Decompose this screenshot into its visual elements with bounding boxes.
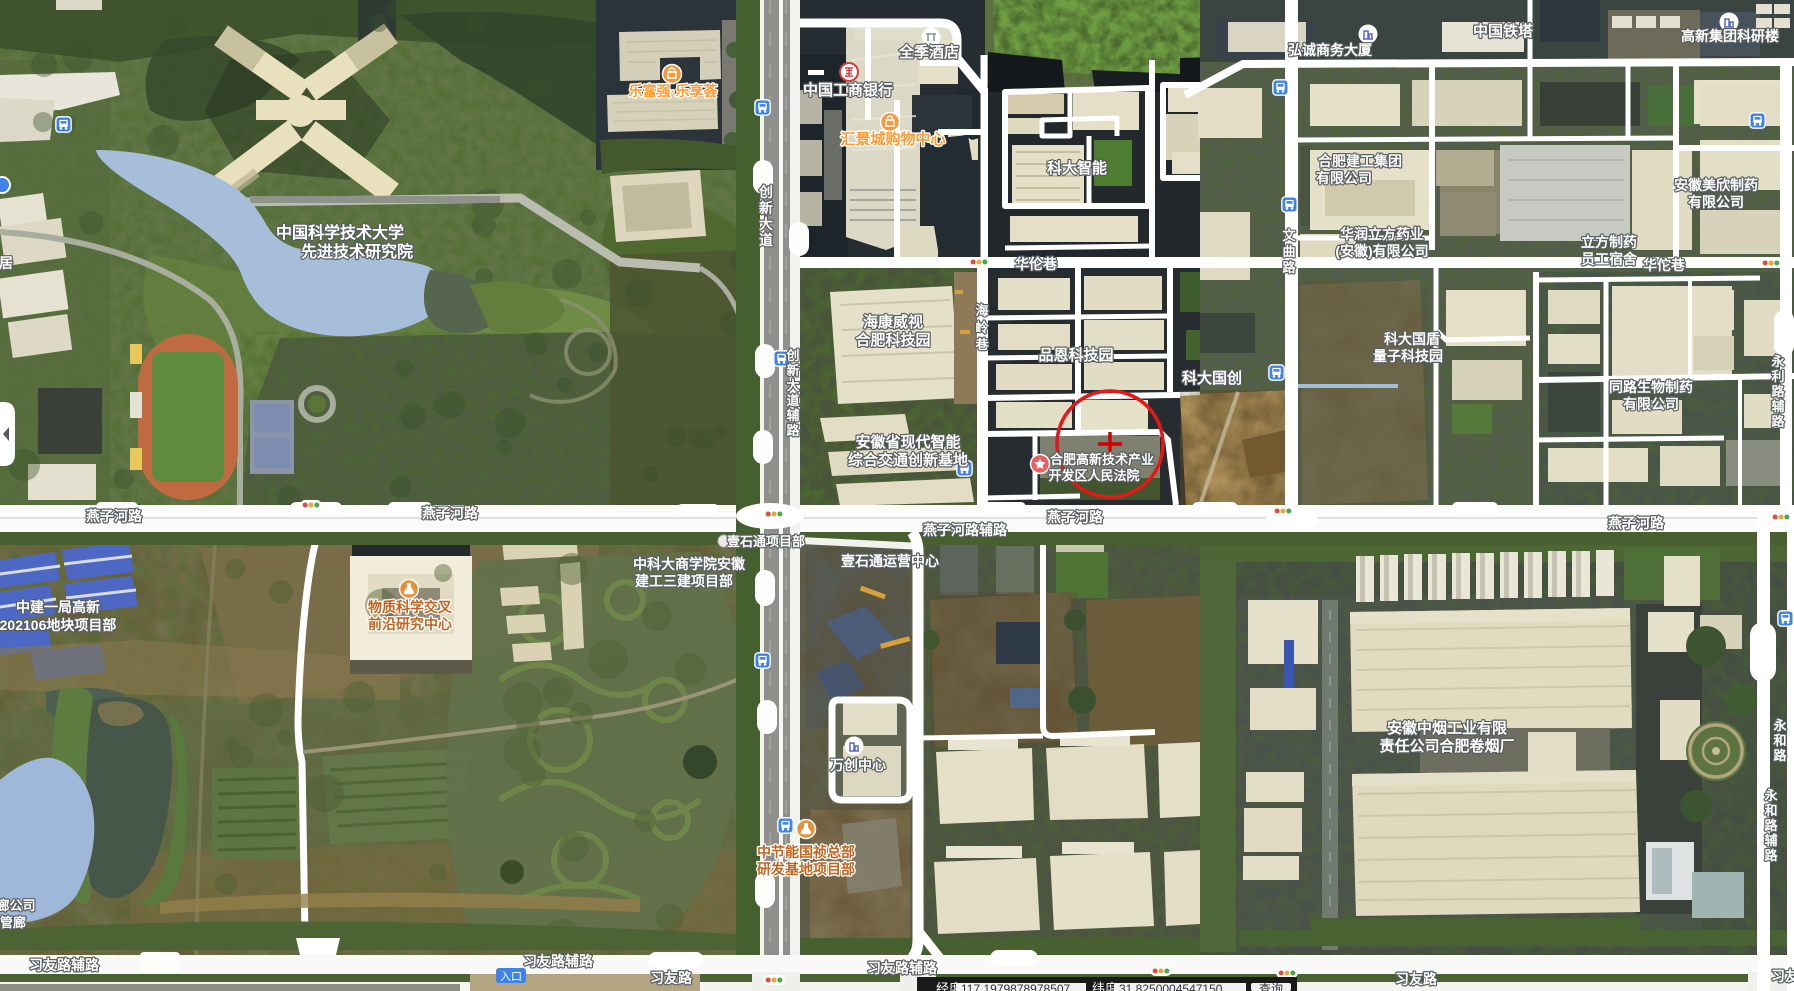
svg-text:科大国盾: 科大国盾 (1384, 331, 1440, 347)
svg-text:新: 新 (759, 200, 773, 216)
svg-text:新: 新 (786, 363, 799, 378)
svg-text:和: 和 (1764, 803, 1777, 818)
svg-text:中国工商银行: 中国工商银行 (803, 81, 893, 99)
svg-text:习友: 习友 (1771, 968, 1794, 984)
svg-text:中国科学技术大学: 中国科学技术大学 (276, 223, 404, 242)
svg-text:曲: 曲 (1282, 244, 1295, 259)
svg-text:华伦巷: 华伦巷 (1015, 256, 1058, 272)
svg-text:路: 路 (1282, 260, 1296, 275)
svg-text:开发区人民法院: 开发区人民法院 (1048, 468, 1139, 483)
svg-text:中国铁塔: 中国铁塔 (1473, 22, 1534, 40)
svg-text:廊公司: 廊公司 (0, 898, 36, 913)
svg-text:燕子河路: 燕子河路 (1047, 509, 1104, 525)
svg-text:全季酒店: 全季酒店 (898, 43, 959, 61)
svg-text:汇景城购物中心: 汇景城购物中心 (840, 130, 945, 148)
svg-text:中建一局高新: 中建一局高新 (16, 599, 100, 615)
svg-text:品恩科技园: 品恩科技园 (1038, 346, 1113, 364)
svg-text:和: 和 (1773, 733, 1786, 748)
svg-text:海康威视: 海康威视 (863, 313, 923, 331)
svg-text:有限公司: 有限公司 (1623, 396, 1679, 412)
svg-text:壹石通项目部: 壹石通项目部 (727, 534, 805, 549)
svg-text:路: 路 (1764, 848, 1778, 863)
svg-text:安徽美欣制药: 安徽美欣制药 (1674, 177, 1758, 193)
svg-text:31.8250004547150: 31.8250004547150 (1119, 982, 1223, 991)
svg-text:习友路辅路: 习友路辅路 (867, 960, 938, 976)
svg-text:文: 文 (1282, 228, 1296, 243)
svg-text:中节能国祯总部: 中节能国祯总部 (757, 844, 855, 860)
svg-text:路: 路 (1764, 818, 1778, 833)
svg-text:路: 路 (1771, 414, 1785, 429)
svg-text:习友路: 习友路 (1395, 971, 1438, 987)
svg-text:202106地块项目部: 202106地块项目部 (0, 617, 116, 633)
svg-text:路: 路 (786, 423, 800, 438)
svg-text:永: 永 (1772, 718, 1787, 733)
svg-text:燕子河路: 燕子河路 (422, 505, 479, 521)
svg-text:道: 道 (759, 232, 773, 248)
svg-text:习友路: 习友路 (650, 970, 693, 986)
svg-text:前沿研究中心: 前沿研究中心 (368, 616, 452, 632)
svg-text:有限公司: 有限公司 (1688, 194, 1744, 210)
svg-text:先进技术研究院: 先进技术研究院 (301, 242, 413, 261)
svg-text:辅: 辅 (1771, 399, 1784, 414)
svg-text:大: 大 (759, 216, 773, 232)
svg-text:壹石通运营中心: 壹石通运营中心 (841, 553, 939, 569)
svg-text:入口: 入口 (500, 971, 522, 983)
svg-text:责任公司合肥卷烟厂: 责任公司合肥卷烟厂 (1379, 737, 1514, 755)
svg-text:同路生物制药: 同路生物制药 (1609, 379, 1693, 395)
svg-text:燕子河路辅路: 燕子河路辅路 (923, 522, 1008, 538)
svg-text:弘诚商务大厦: 弘诚商务大厦 (1288, 42, 1373, 58)
svg-text:岭: 岭 (975, 320, 988, 335)
svg-text:研发基地项目部: 研发基地项目部 (757, 861, 855, 877)
svg-text:中科大商学院安徽: 中科大商学院安徽 (633, 556, 746, 572)
svg-text:建工三建项目部: 建工三建项目部 (635, 573, 733, 589)
svg-text:创: 创 (785, 348, 799, 363)
svg-text:永: 永 (1770, 354, 1785, 369)
svg-text:燕子河路: 燕子河路 (86, 508, 143, 524)
svg-text:辅: 辅 (1764, 833, 1777, 848)
svg-text:有限公司: 有限公司 (1316, 170, 1372, 186)
svg-text:燕子河路: 燕子河路 (1608, 515, 1665, 531)
svg-text:利: 利 (1771, 369, 1784, 384)
svg-text:立方制药: 立方制药 (1581, 234, 1637, 250)
svg-text:合肥建工集团: 合肥建工集团 (1318, 153, 1402, 169)
svg-text:合肥科技园: 合肥科技园 (854, 331, 930, 349)
svg-text:华佗巷: 华佗巷 (1643, 257, 1686, 273)
svg-text:路: 路 (1773, 748, 1787, 763)
svg-text:巷: 巷 (974, 337, 989, 352)
svg-text:量子科技园: 量子科技园 (1373, 348, 1443, 364)
svg-text:安徽省现代智能: 安徽省现代智能 (855, 433, 960, 451)
svg-text:道: 道 (786, 393, 799, 408)
svg-text:永: 永 (1763, 788, 1778, 803)
svg-text:辅: 辅 (786, 408, 799, 423)
svg-text:科大国创: 科大国创 (1182, 369, 1242, 387)
svg-text:科大智能: 科大智能 (1047, 159, 1107, 177)
svg-text:综合交通创新基地: 综合交通创新基地 (848, 451, 968, 469)
svg-text:大: 大 (786, 378, 799, 393)
svg-text:路: 路 (1771, 384, 1785, 399)
svg-text:查询: 查询 (1259, 982, 1283, 991)
svg-text:万创中心: 万创中心 (829, 757, 886, 773)
svg-text:员工宿舍: 员工宿舍 (1581, 251, 1638, 267)
svg-text:物质科学交叉: 物质科学交叉 (368, 599, 453, 615)
svg-text:管廊: 管廊 (0, 915, 26, 930)
svg-text:安徽中烟工业有限: 安徽中烟工业有限 (1387, 719, 1507, 737)
svg-text:(安徽)有限公司: (安徽)有限公司 (1335, 243, 1428, 259)
svg-text:居: 居 (0, 255, 13, 271)
svg-text:习友路辅路: 习友路辅路 (29, 957, 100, 973)
svg-text:华润立方药业: 华润立方药业 (1340, 226, 1424, 242)
svg-text:创: 创 (758, 184, 773, 200)
svg-text:117.1979878978507: 117.1979878978507 (961, 982, 1071, 991)
svg-text:合肥高新技术产业: 合肥高新技术产业 (1050, 452, 1154, 467)
svg-text:海: 海 (975, 303, 988, 318)
svg-text:乐富强·乐享荟: 乐富强·乐享荟 (629, 83, 719, 99)
svg-text:高新集团科研楼: 高新集团科研楼 (1681, 28, 1779, 44)
svg-text:习友路辅路: 习友路辅路 (523, 953, 594, 969)
